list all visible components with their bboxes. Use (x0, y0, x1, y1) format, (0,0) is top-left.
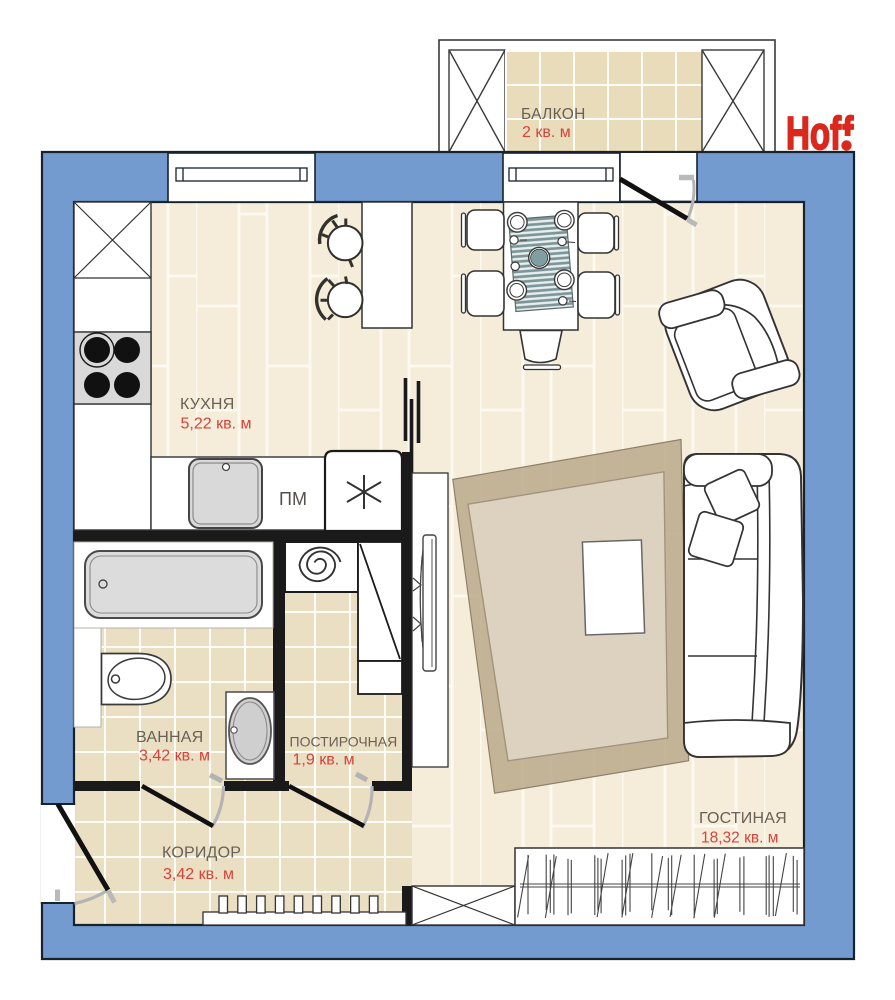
svg-text:5,22 кв. м: 5,22 кв. м (181, 416, 252, 433)
svg-text:1,9 кв. м: 1,9 кв. м (293, 752, 355, 769)
svg-text:2 кв. м: 2 кв. м (522, 124, 571, 141)
svg-text:18,32 кв. м: 18,32 кв. м (701, 830, 778, 847)
svg-text:3,42 кв. м: 3,42 кв. м (163, 866, 234, 883)
svg-text:БАЛКОН: БАЛКОН (521, 106, 586, 123)
svg-text:ГОСТИНАЯ: ГОСТИНАЯ (699, 810, 787, 827)
svg-text:ПМ: ПМ (279, 489, 307, 509)
svg-text:ПОСТИРОЧНАЯ: ПОСТИРОЧНАЯ (290, 734, 398, 750)
svg-text:ВАННАЯ: ВАННАЯ (136, 729, 203, 746)
svg-text:КОРИДОР: КОРИДОР (162, 845, 241, 862)
svg-text:КУХНЯ: КУХНЯ (180, 396, 234, 413)
svg-text:3,42 кв. м: 3,42 кв. м (139, 748, 210, 765)
